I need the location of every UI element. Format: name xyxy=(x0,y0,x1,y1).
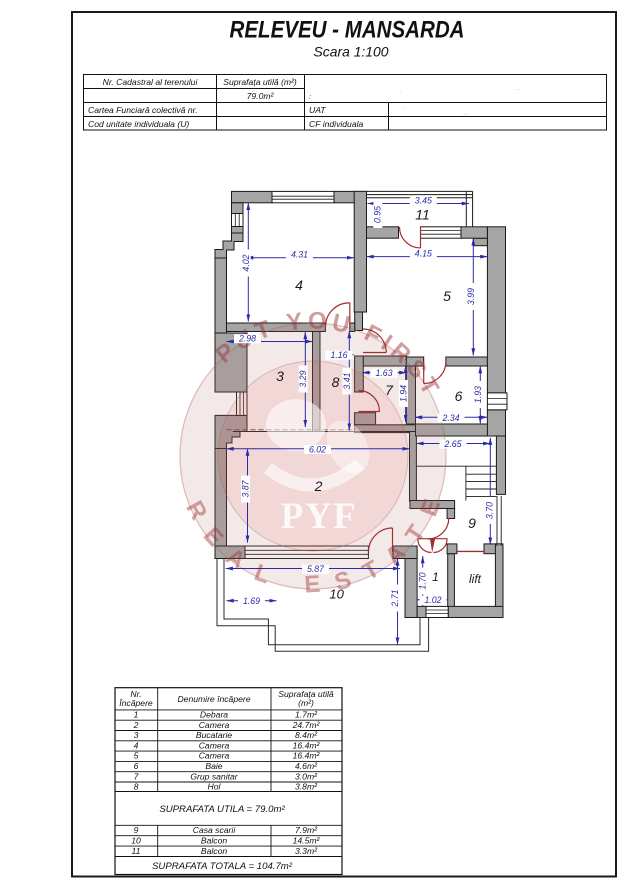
svg-text:UAT: UAT xyxy=(309,105,326,115)
svg-text:Balcon: Balcon xyxy=(201,846,227,856)
svg-text:16.4m²: 16.4m² xyxy=(293,751,321,761)
svg-text:Bucatarie: Bucatarie xyxy=(196,730,233,740)
svg-text:6: 6 xyxy=(134,761,139,771)
svg-text:Casa scarii: Casa scarii xyxy=(193,825,237,835)
svg-text:9: 9 xyxy=(134,825,139,835)
svg-text:Suprafața utilă (m²): Suprafața utilă (m²) xyxy=(223,77,297,87)
svg-text:3.8m²: 3.8m² xyxy=(295,781,318,791)
svg-text:79.0m²: 79.0m² xyxy=(247,91,275,101)
svg-text:1.94: 1.94 xyxy=(398,385,408,402)
svg-text:11: 11 xyxy=(132,846,141,856)
svg-text:Camera: Camera xyxy=(199,751,230,761)
svg-text:3.3m²: 3.3m² xyxy=(295,846,318,856)
svg-text:3: 3 xyxy=(134,730,139,740)
svg-text:RELEVEU - MANSARDA: RELEVEU - MANSARDA xyxy=(230,17,465,44)
svg-text:7.9m²: 7.9m² xyxy=(295,825,318,835)
svg-text:24.7m²: 24.7m² xyxy=(292,720,321,730)
svg-text:Denumire încăpere: Denumire încăpere xyxy=(177,694,250,704)
svg-text:Camera: Camera xyxy=(199,720,230,730)
svg-text:3.29: 3.29 xyxy=(298,370,308,387)
svg-text:1.93: 1.93 xyxy=(473,386,483,403)
svg-text:5: 5 xyxy=(134,751,139,761)
svg-text:4: 4 xyxy=(134,740,139,750)
svg-text:4.02: 4.02 xyxy=(241,254,251,271)
svg-text:1.7m²: 1.7m² xyxy=(295,710,318,720)
svg-text:3.70: 3.70 xyxy=(485,502,495,519)
svg-text:...: ... xyxy=(515,86,520,92)
svg-text:1: 1 xyxy=(134,710,139,720)
svg-text:-: - xyxy=(404,105,406,111)
svg-text:Încăpere: Încăpere xyxy=(119,698,153,708)
svg-text:4.6m²: 4.6m² xyxy=(295,761,318,771)
svg-text:Debara: Debara xyxy=(200,710,228,720)
svg-text:4: 4 xyxy=(295,277,303,293)
svg-text:3.45: 3.45 xyxy=(415,196,432,206)
svg-text:....: .... xyxy=(462,111,469,117)
svg-text:1.69: 1.69 xyxy=(243,596,260,606)
svg-text:6: 6 xyxy=(455,388,463,404)
svg-text:lift: lift xyxy=(469,572,482,586)
svg-text:10: 10 xyxy=(131,835,141,845)
svg-text:16.4m²: 16.4m² xyxy=(293,740,321,750)
svg-text:8: 8 xyxy=(134,781,139,791)
svg-text:5: 5 xyxy=(443,288,451,304)
svg-text:Cod unitate individuala (U): Cod unitate individuala (U) xyxy=(88,119,189,129)
svg-text:Scara 1:100: Scara 1:100 xyxy=(314,44,389,60)
svg-text:(m²): (m²) xyxy=(298,698,314,708)
svg-text:2.65: 2.65 xyxy=(443,439,461,449)
svg-text:PYF: PYF xyxy=(281,496,357,537)
svg-text:4.31: 4.31 xyxy=(291,250,308,260)
svg-text:CF individuala: CF individuala xyxy=(309,119,364,129)
svg-text:1: 1 xyxy=(432,570,439,584)
svg-text:2.98: 2.98 xyxy=(238,334,256,344)
svg-text:1.02: 1.02 xyxy=(424,595,441,605)
svg-text:SUPRAFATA TOTALA = 104.7m²: SUPRAFATA TOTALA = 104.7m² xyxy=(152,861,293,872)
svg-text:3.0m²: 3.0m² xyxy=(295,771,318,781)
svg-text:8.4m²: 8.4m² xyxy=(295,730,318,740)
svg-text:2: 2 xyxy=(314,478,323,494)
svg-text:3.99: 3.99 xyxy=(466,288,476,305)
svg-text:9: 9 xyxy=(468,515,476,531)
svg-text:1.63: 1.63 xyxy=(375,368,392,378)
svg-text:Hol: Hol xyxy=(208,781,222,791)
svg-text::: : xyxy=(309,94,311,101)
svg-text:4.15: 4.15 xyxy=(415,249,432,259)
svg-text:Balcon: Balcon xyxy=(201,835,227,845)
svg-text:2.71: 2.71 xyxy=(390,589,400,607)
svg-text:8: 8 xyxy=(332,374,340,390)
svg-text:0.95: 0.95 xyxy=(373,206,383,223)
svg-text:1.70: 1.70 xyxy=(417,572,427,589)
svg-text:11: 11 xyxy=(415,207,430,223)
svg-text:6.02: 6.02 xyxy=(309,444,326,454)
svg-text:7: 7 xyxy=(385,382,394,398)
svg-text:3.41: 3.41 xyxy=(342,372,352,389)
svg-text:Nr. Cadastral al terenului: Nr. Cadastral al terenului xyxy=(103,77,199,87)
svg-text:.: . xyxy=(400,88,402,94)
svg-text:3.87: 3.87 xyxy=(240,479,250,497)
svg-text:14.5m²: 14.5m² xyxy=(293,835,321,845)
svg-text:Camera: Camera xyxy=(199,740,230,750)
svg-text:SUPRAFATA UTILA = 79.0m²: SUPRAFATA UTILA = 79.0m² xyxy=(159,804,285,815)
svg-text:Cartea Funciară colectivă nr.: Cartea Funciară colectivă nr. xyxy=(88,105,198,115)
svg-text:3: 3 xyxy=(276,368,284,384)
svg-text:2: 2 xyxy=(133,720,139,730)
svg-text:Grup sanitar: Grup sanitar xyxy=(190,771,238,781)
svg-text:1.16: 1.16 xyxy=(330,350,347,360)
svg-text:10: 10 xyxy=(329,587,344,602)
svg-text:5.87: 5.87 xyxy=(307,564,325,574)
svg-text:2.34: 2.34 xyxy=(441,413,459,423)
svg-text:Baie: Baie xyxy=(205,761,222,771)
